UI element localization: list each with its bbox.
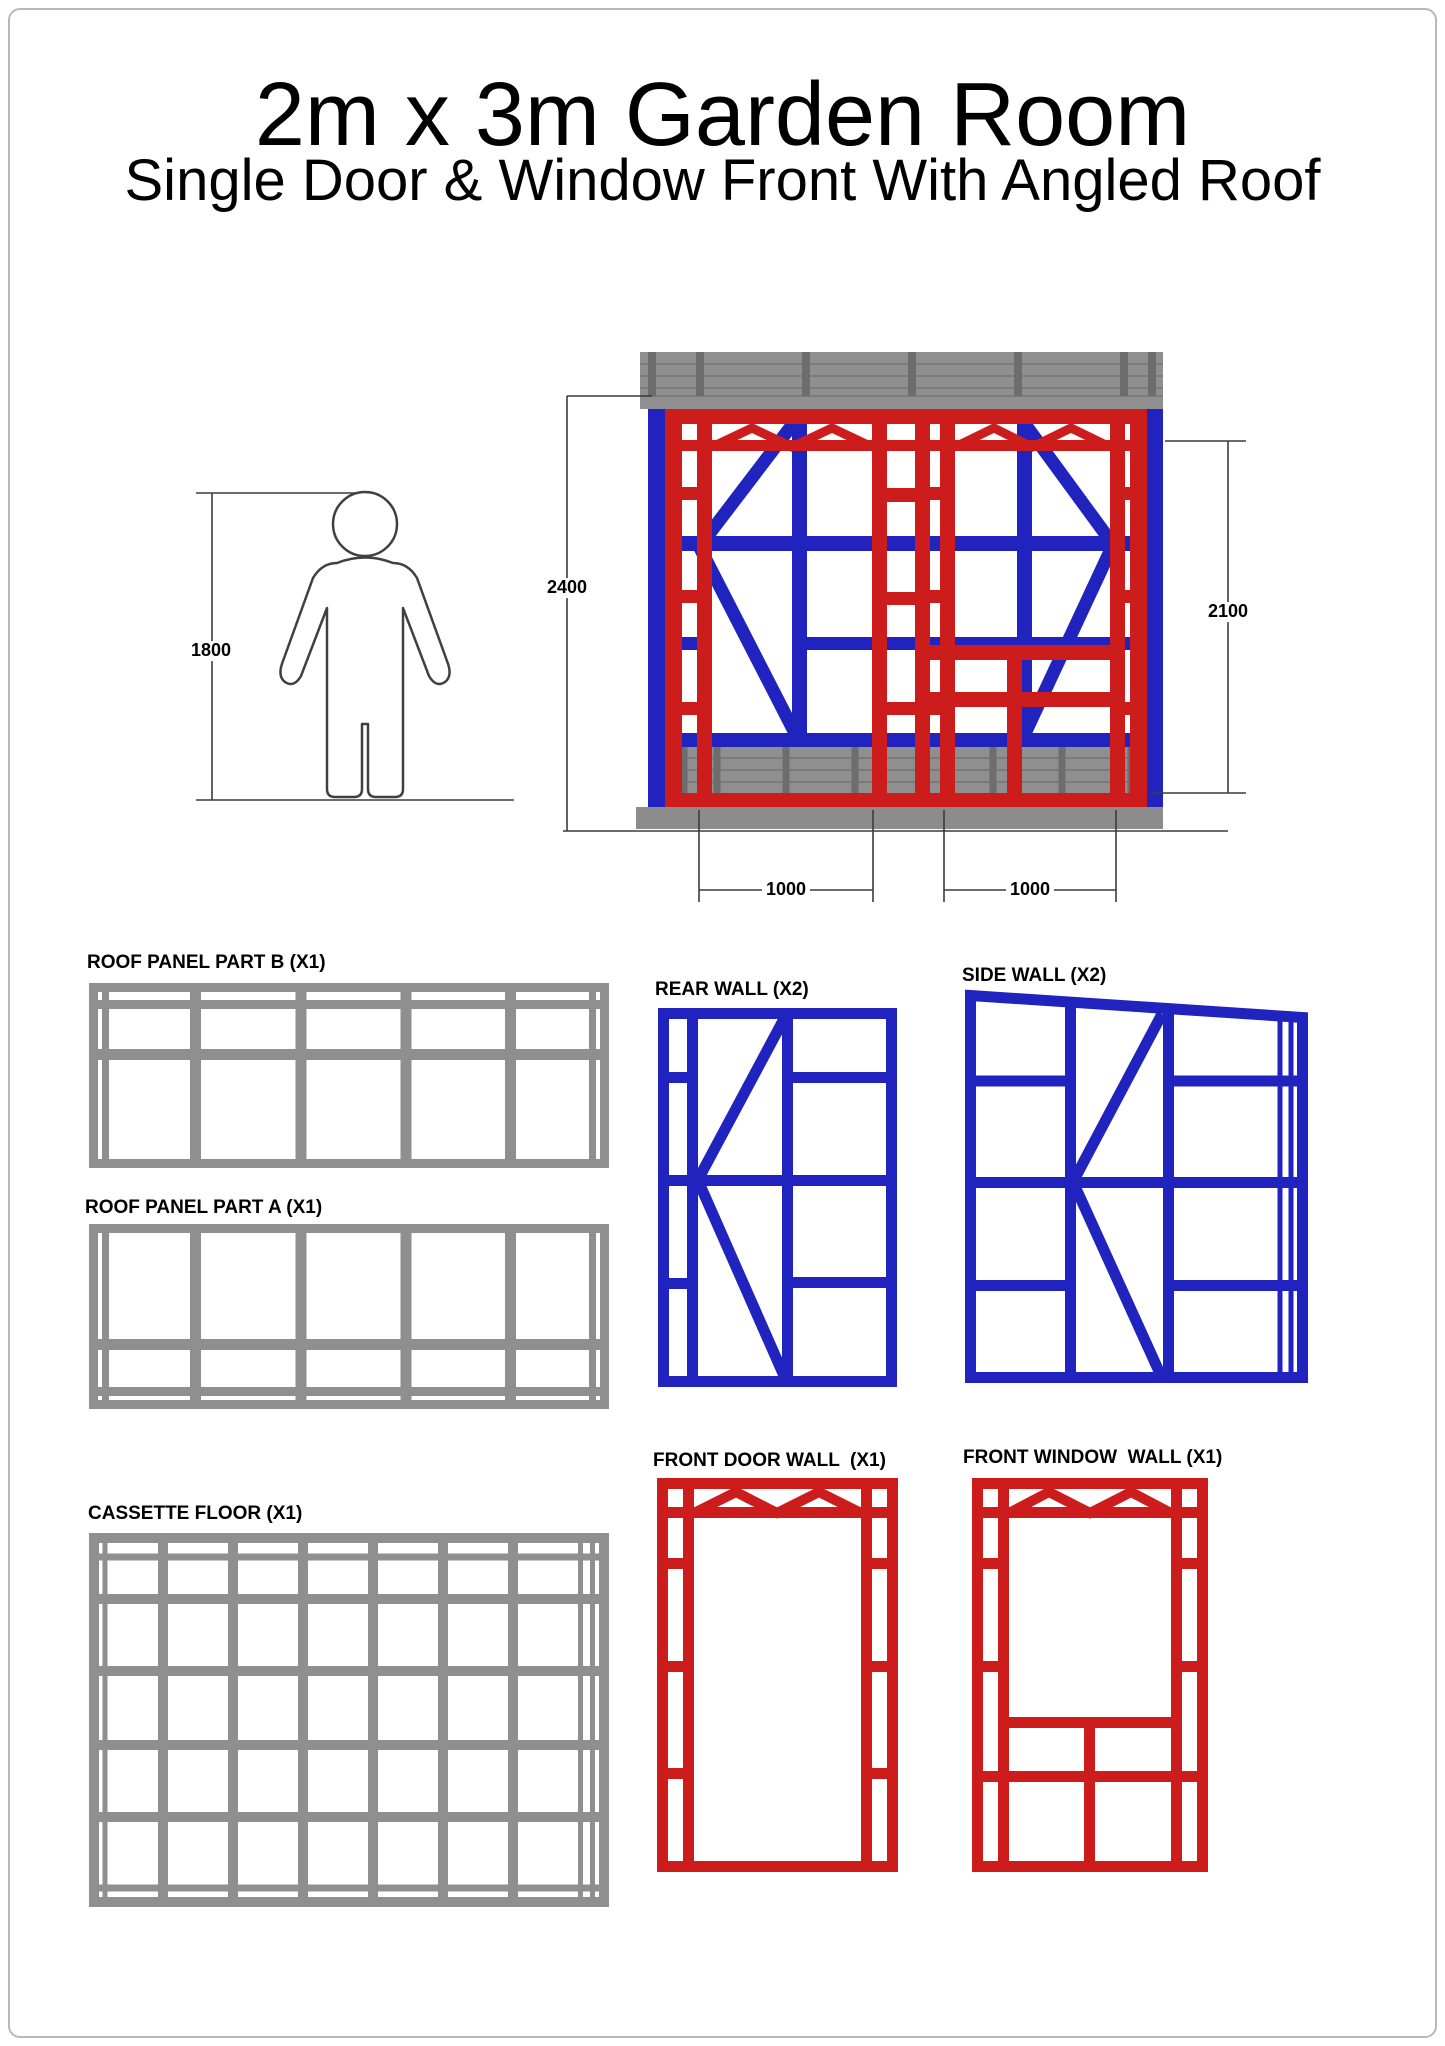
label-roof-panel-a: ROOF PANEL PART A (X1)	[85, 1198, 322, 1219]
person-head	[333, 492, 397, 556]
dim-wall-height-2100: 2100	[1204, 602, 1252, 622]
label-roof-panel-b: ROOF PANEL PART B (X1)	[87, 953, 326, 974]
blue-bottom-rail	[665, 733, 1147, 747]
dim-window-width-1000: 1000	[1006, 880, 1054, 900]
red-bottom-plate	[665, 793, 1147, 807]
blue-right-post	[1147, 409, 1163, 807]
cassette-floor-diagram	[89, 1533, 609, 1907]
dim-door-width-1000: 1000	[762, 880, 810, 900]
dim-overall-height-2400: 2400	[543, 578, 591, 598]
assembly-ground-slab	[636, 807, 1163, 829]
label-cassette-floor: CASSETTE FLOOR (X1)	[88, 1504, 302, 1525]
label-front-window-wall: FRONT WINDOW WALL (X1)	[963, 1448, 1222, 1469]
person-body	[280, 558, 449, 798]
blue-left-post	[648, 409, 665, 807]
label-front-door-wall: FRONT DOOR WALL (X1)	[653, 1451, 886, 1472]
red-top-plate	[665, 409, 1147, 424]
dim-person-height-1800: 1800	[187, 641, 235, 661]
drawing-linework	[0, 0, 1445, 2046]
assembly-roof-slab	[640, 352, 1163, 409]
roof-panel-a-diagram	[89, 1224, 609, 1409]
label-side-wall: SIDE WALL (X2)	[962, 966, 1106, 987]
rear-wall-diagram	[658, 1008, 897, 1387]
front-window-wall-diagram	[978, 1484, 1203, 1867]
roof-panel-b-diagram	[89, 983, 609, 1168]
blue-k-braces	[700, 416, 1112, 740]
red-truss-chord	[682, 440, 1147, 451]
assembly-elevation	[563, 352, 1246, 902]
label-rear-wall: REAR WALL (X2)	[655, 980, 809, 1001]
red-window-sill	[930, 645, 1125, 660]
blue-mid-rail	[665, 536, 1147, 551]
side-wall-diagram	[965, 996, 1308, 1384]
person-figure	[196, 492, 514, 800]
front-door-wall-diagram	[663, 1484, 893, 1867]
blue-stud-left	[792, 415, 807, 747]
assembly-floor-cassette-edge	[665, 747, 1147, 793]
